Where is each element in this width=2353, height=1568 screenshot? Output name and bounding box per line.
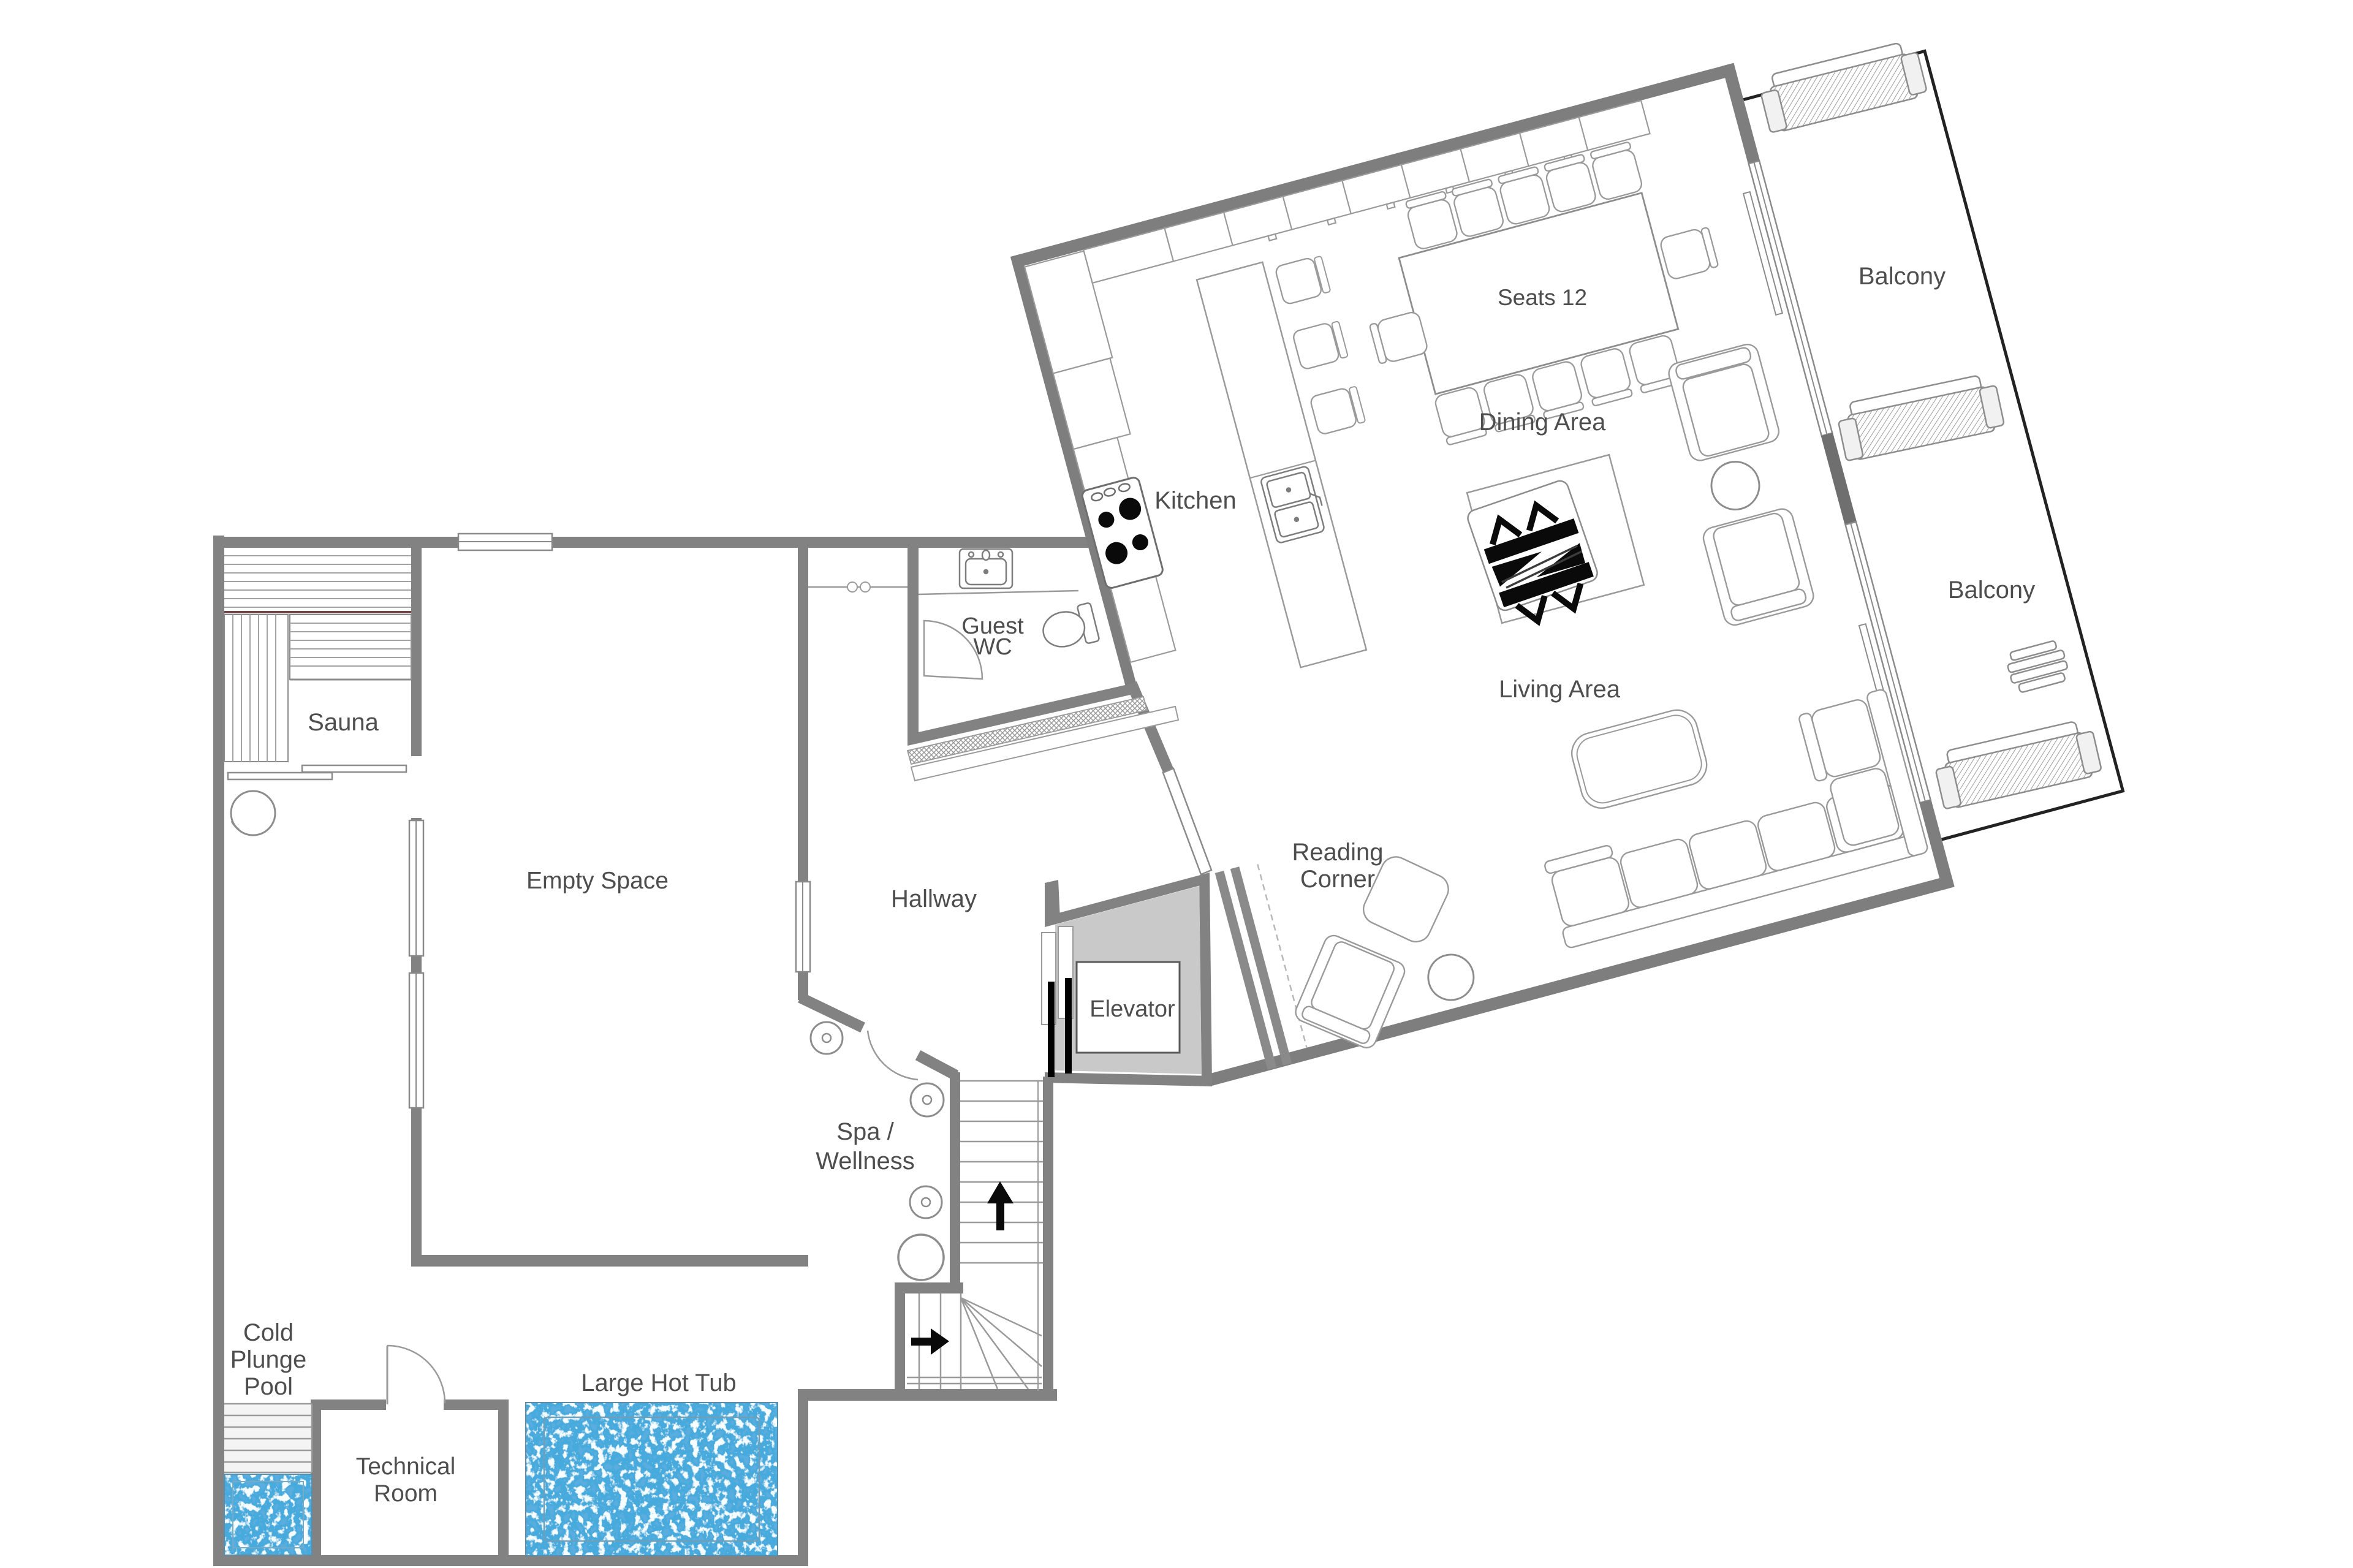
svg-text:Dining Area: Dining Area xyxy=(1479,409,1607,436)
svg-text:Plunge: Plunge xyxy=(230,1346,307,1373)
svg-text:Sauna: Sauna xyxy=(308,709,379,736)
svg-text:Pool: Pool xyxy=(244,1373,293,1400)
svg-text:Corner: Corner xyxy=(1300,866,1375,893)
svg-text:Elevator: Elevator xyxy=(1089,996,1175,1022)
svg-text:Wellness: Wellness xyxy=(816,1148,915,1175)
svg-text:Cold: Cold xyxy=(243,1319,294,1346)
svg-text:Balcony: Balcony xyxy=(1948,577,2035,604)
svg-text:Spa /: Spa / xyxy=(836,1118,894,1145)
svg-text:Reading: Reading xyxy=(1292,839,1383,866)
svg-text:Seats 12: Seats 12 xyxy=(1498,285,1587,310)
svg-text:Living Area: Living Area xyxy=(1499,676,1621,703)
svg-text:WC: WC xyxy=(973,634,1012,660)
svg-text:Hallway: Hallway xyxy=(891,885,977,912)
svg-text:Large Hot Tub: Large Hot Tub xyxy=(581,1369,737,1396)
svg-text:Balcony: Balcony xyxy=(1859,263,1946,290)
svg-text:Kitchen: Kitchen xyxy=(1154,487,1236,514)
svg-text:Empty Space: Empty Space xyxy=(526,868,669,894)
svg-text:Technical: Technical xyxy=(356,1453,456,1480)
svg-text:Room: Room xyxy=(374,1480,438,1507)
